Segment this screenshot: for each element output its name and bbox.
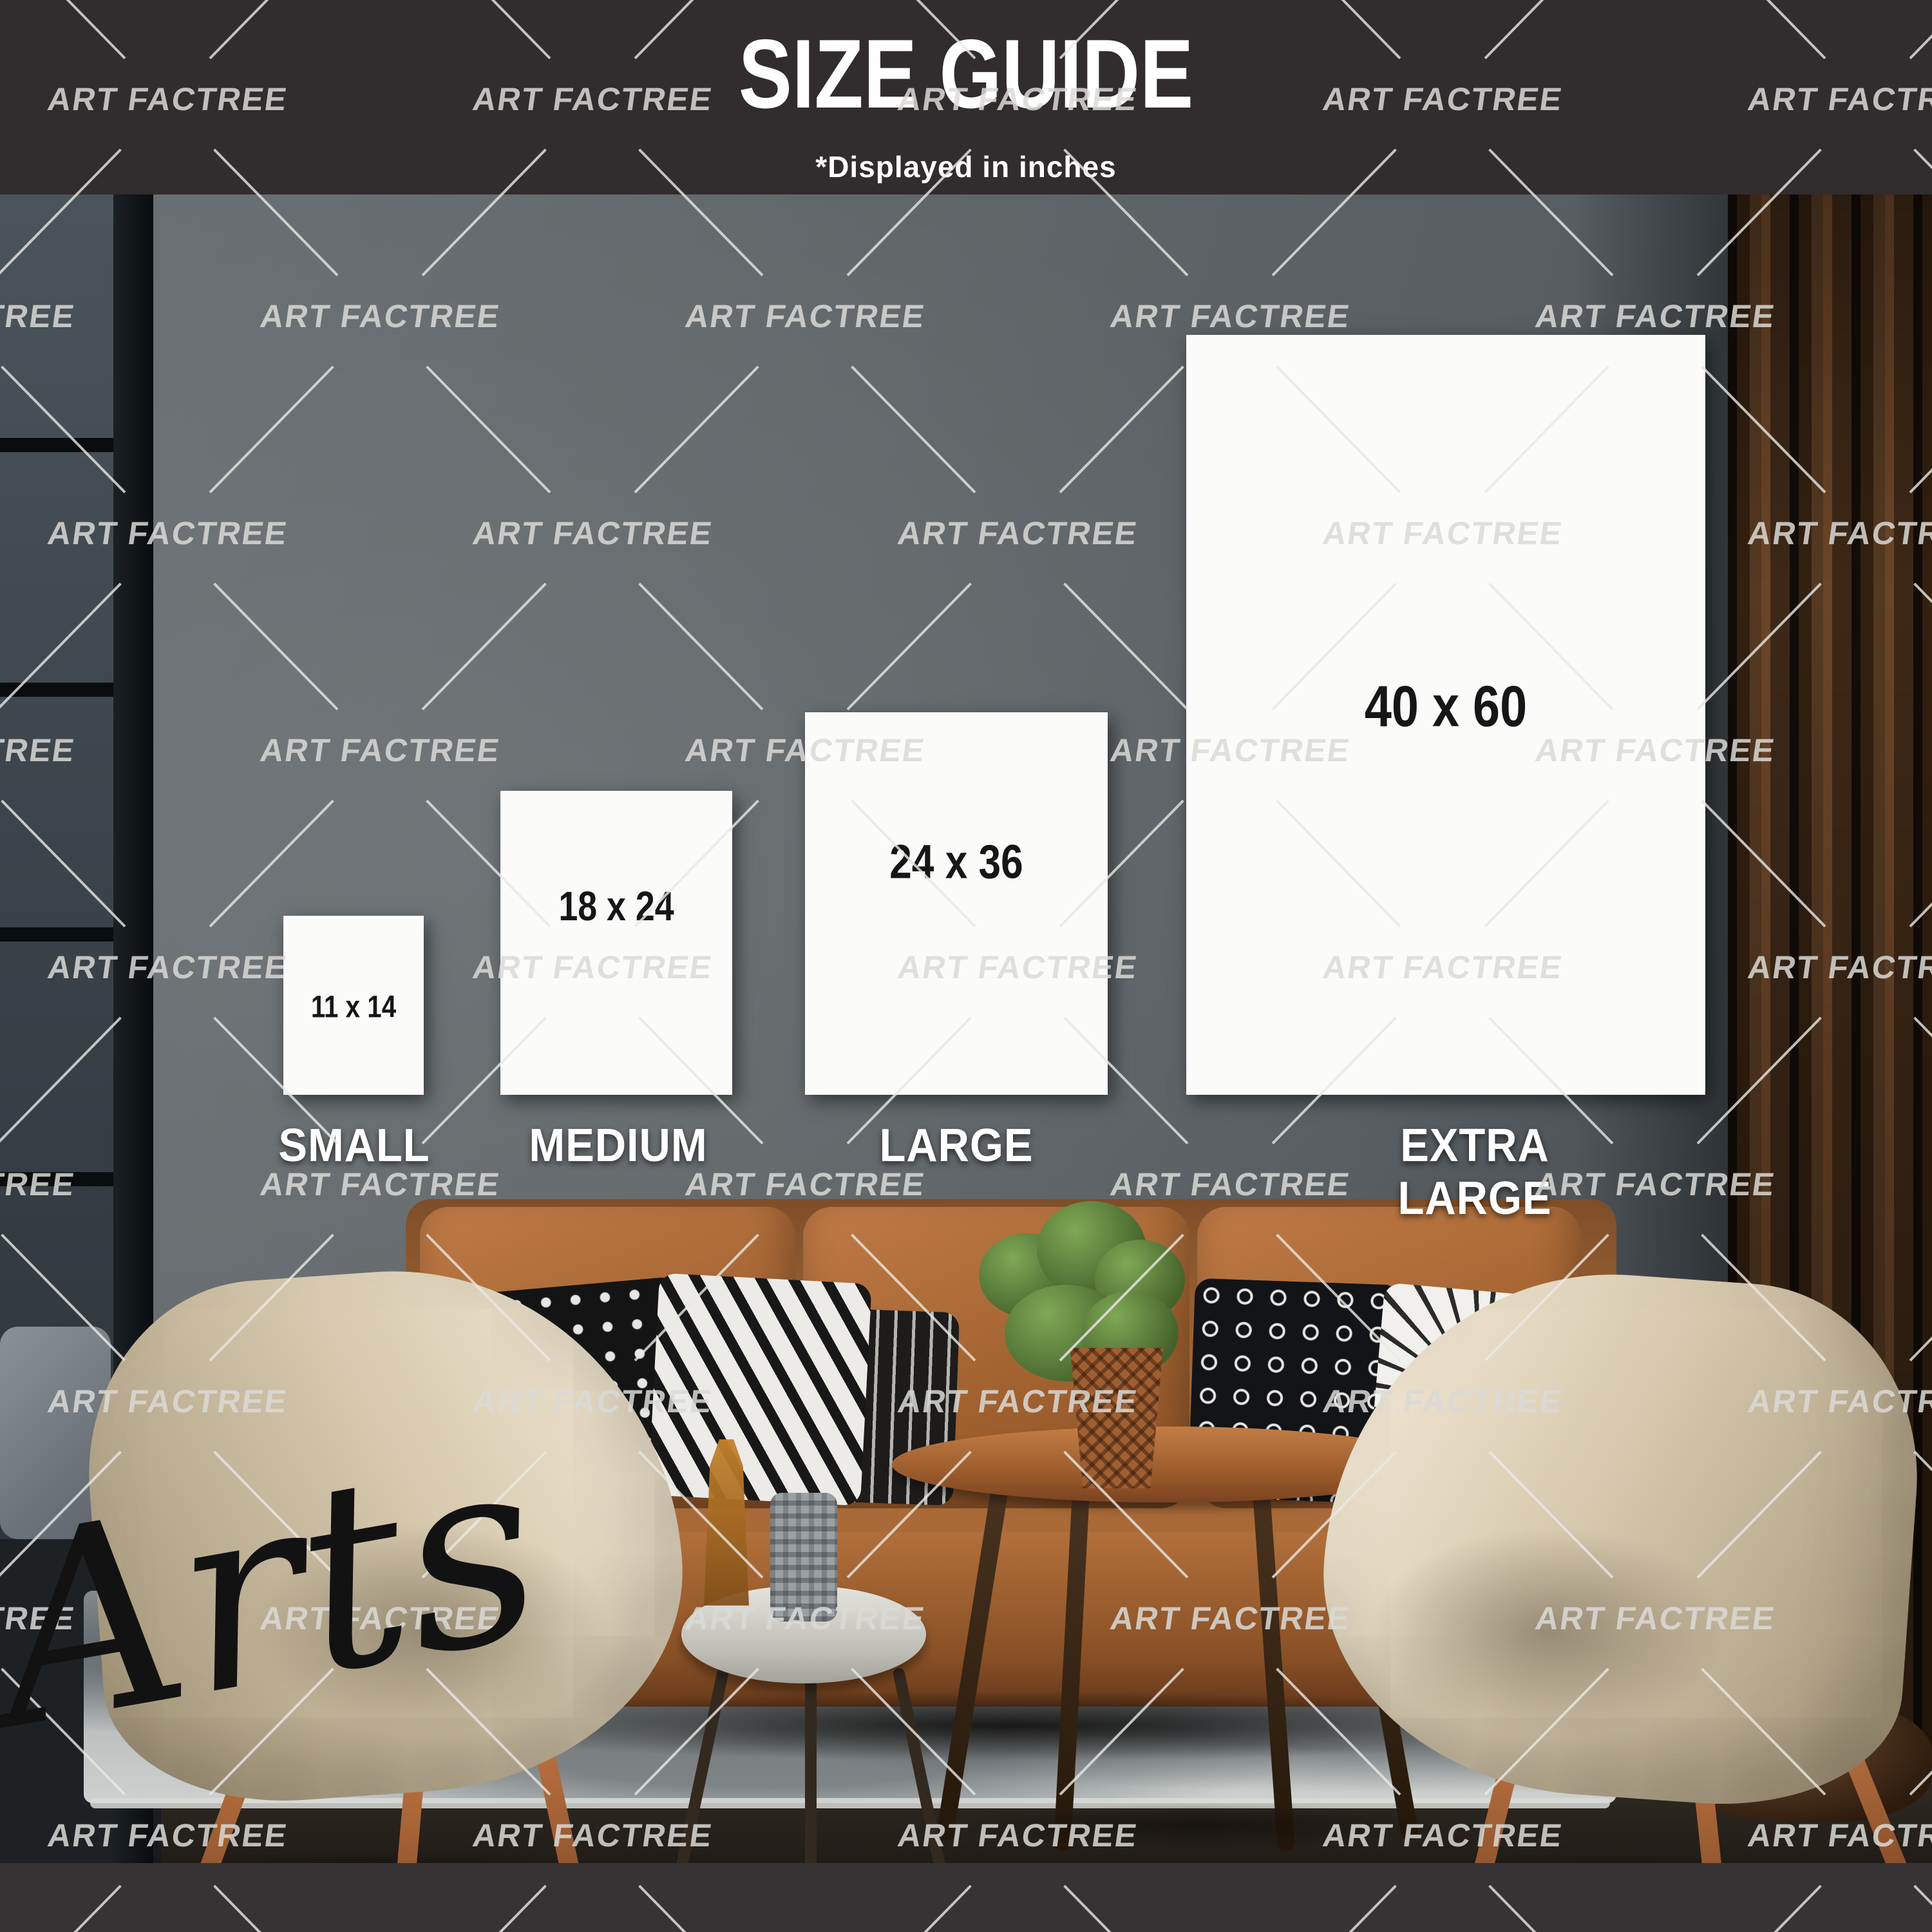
size-label-small: SMALL xyxy=(276,1119,432,1172)
plant-basket xyxy=(1064,1348,1170,1488)
poster-medium-dimensions: 18 x 24 xyxy=(519,882,714,930)
table-leg xyxy=(805,1674,817,1893)
page-subtitle: *Displayed in inches xyxy=(0,149,1932,184)
size-label-extra-large: EXTRA LARGE xyxy=(1319,1119,1631,1225)
armchair-right xyxy=(1291,1249,1932,1932)
partition-bar xyxy=(0,438,116,452)
gray-vase xyxy=(770,1493,837,1622)
potted-plant xyxy=(966,1195,1198,1504)
size-label-medium: MEDIUM xyxy=(529,1119,708,1172)
poster-small-dimensions: 11 x 14 xyxy=(294,989,412,1025)
size-guide-image: SIZE GUIDE *Displayed in inches 11 x 14 … xyxy=(0,0,1932,1932)
poster-extra-large-dimensions: 40 x 60 xyxy=(1227,674,1663,741)
poster-large: 24 x 36 xyxy=(805,712,1108,1095)
poster-small: 11 x 14 xyxy=(283,916,424,1095)
poster-large-dimensions: 24 x 36 xyxy=(829,834,1084,889)
partition-bar xyxy=(0,1172,116,1186)
size-label-large: LARGE xyxy=(864,1119,1049,1172)
partition-bar xyxy=(0,683,116,697)
page-title: SIZE GUIDE xyxy=(174,18,1758,131)
partition-bar xyxy=(0,927,116,942)
chair-seat xyxy=(1368,1526,1729,1739)
poster-extra-large: 40 x 60 xyxy=(1186,335,1705,1095)
poster-medium: 18 x 24 xyxy=(500,791,732,1095)
